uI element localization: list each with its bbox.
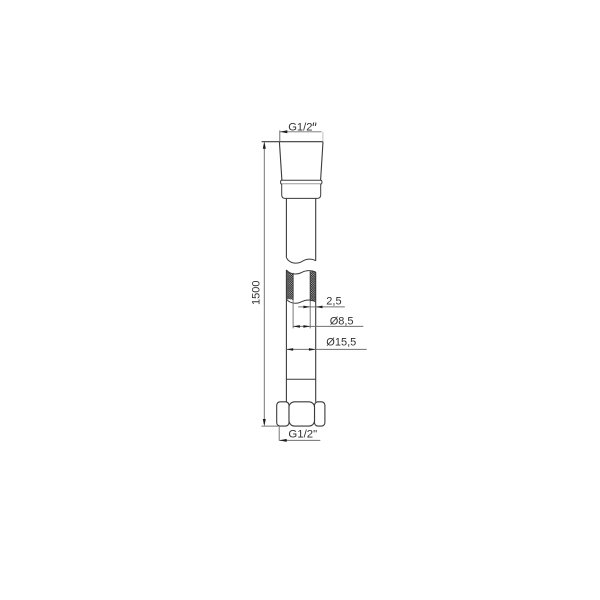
svg-text:2,5: 2,5 xyxy=(326,295,341,307)
svg-text:Ø15,5: Ø15,5 xyxy=(326,336,356,348)
svg-text:1500: 1500 xyxy=(251,281,263,305)
svg-text:Ø8,5: Ø8,5 xyxy=(330,315,354,327)
svg-text:G1/2": G1/2" xyxy=(288,429,317,441)
